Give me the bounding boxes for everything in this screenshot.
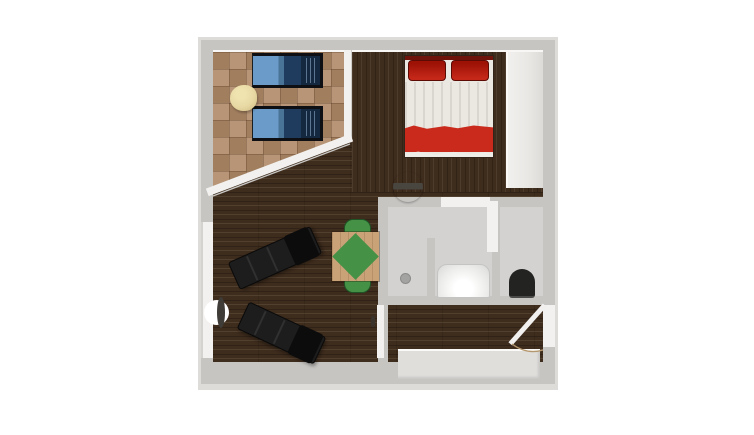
bed <box>404 55 494 158</box>
window-left-wall <box>201 222 213 358</box>
wall-shower-partition <box>427 238 435 300</box>
door-gap-bathroom <box>441 197 490 207</box>
lounger-stripes <box>306 58 318 83</box>
bathtub <box>437 264 490 298</box>
wardrobe <box>506 52 543 188</box>
sun-lounger-2 <box>252 106 323 141</box>
wall-top-inner-highlight <box>213 50 543 52</box>
side-table <box>230 85 257 111</box>
chaise-seam <box>246 256 258 281</box>
outer-frame-bottom <box>198 384 558 390</box>
wall-balcony-vertical <box>344 50 352 142</box>
duvet <box>405 82 493 128</box>
door-leaf-bathroom <box>487 201 498 252</box>
blanket-red <box>405 125 493 152</box>
floor-entry <box>398 349 540 379</box>
pillow-left <box>408 60 446 81</box>
table-runner-diamond <box>332 233 379 280</box>
door-handle-mark <box>371 316 375 327</box>
door-gap-entry <box>543 305 555 347</box>
shower-drain <box>400 273 411 284</box>
lounger-stripes <box>306 111 318 136</box>
chaise-seam <box>266 247 278 272</box>
sun-lounger-1 <box>252 53 323 88</box>
door-leaf-hall <box>377 305 384 358</box>
chaise-seam <box>273 320 286 344</box>
pillow-right <box>451 60 489 81</box>
floor-plan-canvas <box>0 0 754 435</box>
door-disc-bathroom <box>393 172 423 202</box>
dining-table <box>332 232 379 281</box>
chaise-seam <box>254 311 267 335</box>
door-leaf-left-lens <box>217 297 225 328</box>
toilet <box>509 269 535 298</box>
outer-frame-right <box>555 40 558 390</box>
